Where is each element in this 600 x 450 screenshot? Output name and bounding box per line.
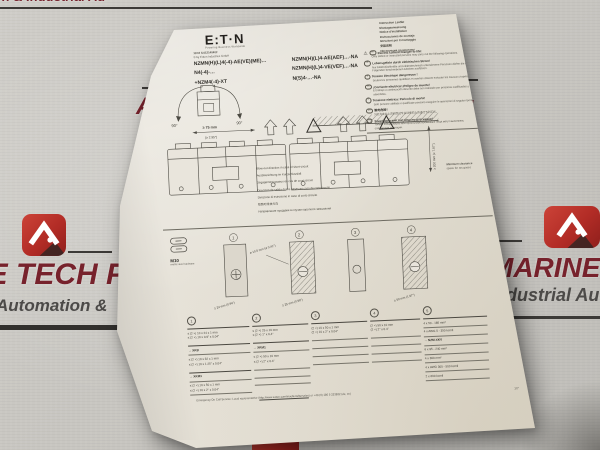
busbar-dim-2: ≥ 25 mm (0.98") bbox=[282, 298, 304, 308]
busbar-num-3: 3 bbox=[354, 230, 357, 235]
column-header-circle: 3 bbox=[311, 311, 320, 320]
dim-side-label: ≥ 200 mm (≥ 7.87") bbox=[431, 143, 436, 169]
terminal-lug-icon bbox=[169, 237, 188, 254]
clearance-note-line2: space for arc gases bbox=[447, 165, 495, 171]
column-header-circle: 5 bbox=[423, 306, 432, 315]
m10-subtext: metric size hardware bbox=[170, 262, 194, 266]
table-column-3: 3 (2 ×) 10 x 50 x 1 mm (2 ×) 10 x 2" x 0… bbox=[311, 309, 370, 392]
product-codes-right: NZMN(H)(L)4-AE(AEF)…-NA NZMN(H)(L)4-VE(V… bbox=[292, 53, 360, 84]
page-number: 1/7 bbox=[514, 386, 519, 390]
photo-scene: { "scene": { "bg_color": "#c9c7c2", "pap… bbox=[0, 0, 600, 450]
column-header-circle: 1 bbox=[187, 316, 196, 325]
blowout-direction-list: Blow-out direction in case of short-circ… bbox=[256, 162, 331, 216]
footer-suffix: ) or +49 (0) 180 5 223822 (de, en) bbox=[309, 392, 351, 398]
column-header-circle: 4 bbox=[370, 308, 379, 317]
table-column-1: 1 ≤ (2 ×) 10 x 24 x 1 mm ≤ (2 ×) 10 x 0.… bbox=[187, 314, 252, 397]
instruction-leaflet-paper: E:T·N Powering Business Worldwide 11/16 … bbox=[0, 0, 600, 450]
busbar-num-1: 1 bbox=[232, 235, 235, 240]
eaton-logo: E:T·N Powering Business Worldwide bbox=[204, 32, 245, 50]
m10-hardware-block: M10 metric size hardware bbox=[169, 236, 194, 266]
table-column-2: 2 ≤ (2 ×) 25 x 10 mm ≤ (2 ×) 1" x 0.4" →… bbox=[252, 311, 311, 394]
busbar-figure: 1 2 3 4 ⌀ 10.5 mm (⌀ 0.41") ≥ 24 mm (0.9… bbox=[207, 221, 448, 313]
leaflet-content: E:T·N Powering Business Worldwide 11/16 … bbox=[150, 9, 503, 425]
table-column-5: 5 4 x 50 - 185 mm² 4 x AWG 0 - 350 kcmil… bbox=[423, 304, 490, 387]
dim-top-inches: (≥ 2.95") bbox=[205, 135, 217, 140]
dim-top-label: ≥ 75 mm bbox=[202, 125, 217, 130]
footer-prefix: Emergency On Call Service: Local represe… bbox=[196, 396, 259, 403]
lang-tag: fr bbox=[364, 74, 370, 80]
paper-shadow-wrap: E:T·N Powering Business Worldwide 11/16 … bbox=[0, 0, 600, 450]
busbar-dim-4: ≥ 50 mm (1.97") bbox=[393, 293, 415, 303]
table-cell: ≤ (2 ×) 1" x 0.4" bbox=[253, 331, 309, 338]
busbar-num-2: 2 bbox=[298, 232, 301, 237]
warning-triangle-icon: ⚠ bbox=[363, 51, 367, 55]
lang-tag: es bbox=[365, 84, 372, 90]
dimensions-table: 1 ≤ (2 ×) 10 x 24 x 1 mm ≤ (2 ×) 10 x 0.… bbox=[187, 304, 490, 398]
busbar-dim-hole: ⌀ 10.5 mm (⌀ 0.41") bbox=[249, 243, 276, 254]
column-header-circle: 2 bbox=[252, 313, 261, 322]
product-code: N(S)4-…-NA bbox=[292, 72, 359, 84]
table-cell: (2 ×) 2" x 0.4" bbox=[370, 326, 420, 333]
table-cell: ≤ (2 ×) 2" x 0.4" bbox=[254, 357, 310, 364]
busbar-dim-1: ≥ 24 mm (0.94") bbox=[214, 301, 236, 311]
lang-tag: zh bbox=[366, 108, 373, 114]
table-cell: (2 ×) 10 x 2" x 0.04" bbox=[312, 328, 368, 335]
footer-link: http://www.eaton.com/moeller/aftersales bbox=[259, 393, 309, 399]
busbar-num-4: 4 bbox=[410, 227, 413, 232]
lang-tag: de bbox=[364, 61, 371, 67]
eaton-tagline: Powering Business Worldwide bbox=[205, 45, 245, 50]
clearance-note: Minimum clearance space for arc gases bbox=[446, 161, 494, 170]
lang-tag: it bbox=[365, 98, 371, 104]
table-column-4: 4 (2 ×) 50 x 10 mm (2 ×) 2" x 0.4" bbox=[370, 307, 423, 390]
